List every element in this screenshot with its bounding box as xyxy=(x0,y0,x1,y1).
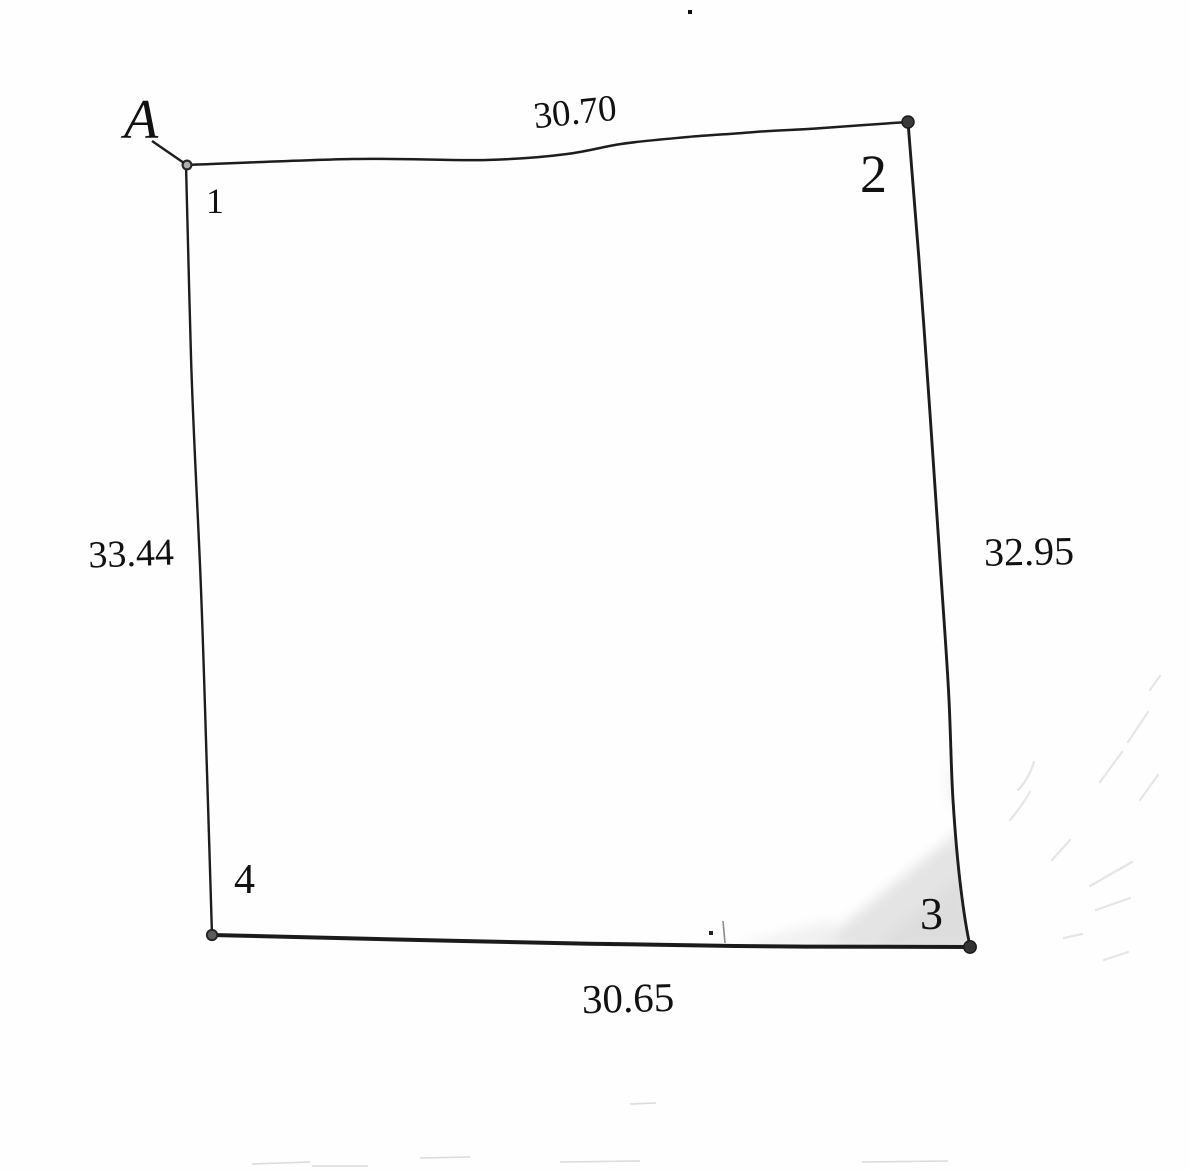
svg-text:2: 2 xyxy=(860,144,887,204)
svg-text:30.70: 30.70 xyxy=(532,88,619,137)
svg-text:33.44: 33.44 xyxy=(88,532,175,577)
svg-text:32.95: 32.95 xyxy=(984,528,1075,575)
svg-text:1: 1 xyxy=(206,181,224,221)
svg-text:4: 4 xyxy=(234,857,255,903)
svg-text:A: A xyxy=(120,89,159,151)
svg-text:30.65: 30.65 xyxy=(581,974,674,1022)
svg-text:3: 3 xyxy=(920,888,943,939)
